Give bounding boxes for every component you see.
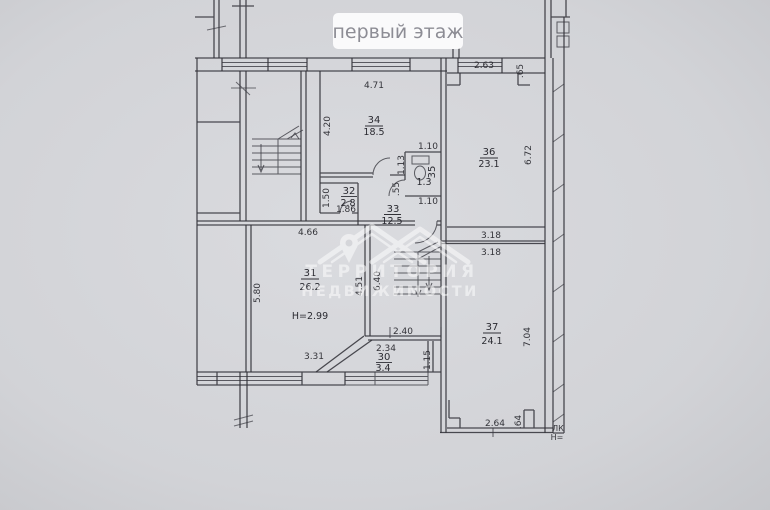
dim-bottom-notch: .64	[514, 415, 524, 430]
watermark-line1: ТЕРРИТОРИЯ	[305, 262, 478, 282]
dim-wc-top: 1.10	[418, 142, 438, 152]
room-37-area: 24.1	[481, 336, 502, 347]
dim-room30-width: 2.34	[376, 344, 396, 354]
room-34-number: 34	[368, 115, 381, 126]
room-37-number: 37	[486, 322, 499, 333]
dim-corridor-upper: 3.18	[481, 231, 501, 241]
dim-corridor-lower: 3.18	[481, 248, 501, 258]
room-31-ceiling-height: Н=2.99	[292, 311, 328, 322]
dim-room31-bottom: 3.31	[304, 352, 324, 362]
dim-room30-top: 2.40	[393, 327, 413, 337]
room-35-number: 35	[427, 166, 438, 179]
watermark-line2: НЕДВИЖИМОСТИ	[301, 284, 478, 300]
dim-wc-left-lower: .55	[392, 182, 402, 196]
floor-badge-label: первый этаж	[332, 21, 463, 43]
floor-badge: первый этаж	[332, 13, 463, 49]
room-36-number: 36	[483, 147, 496, 158]
room-36-area: 23.1	[478, 159, 499, 170]
dim-room32-depth: 1.50	[322, 188, 332, 208]
room-34-area: 18.5	[363, 127, 384, 138]
dim-wc-bottom: 1.10	[418, 197, 438, 207]
dim-room34-width: 4.71	[364, 81, 384, 91]
dim-room36-width: 2.63	[474, 61, 494, 71]
dim-room36-depth: 6.72	[524, 145, 534, 165]
dim-room34-depth: 4.20	[323, 116, 333, 136]
scanned-floorplan-page: 34 18.5 36 23.1 32 2.8 33 12.5 31 26.2 Н…	[0, 0, 770, 510]
dim-room37-depth: 7.04	[523, 327, 533, 347]
room-32-number: 32	[343, 186, 356, 197]
dim-room36-notch: .65	[516, 64, 526, 78]
room-33-number: 33	[387, 204, 400, 215]
floorplan-drawing: 34 18.5 36 23.1 32 2.8 33 12.5 31 26.2 Н…	[0, 0, 770, 510]
dim-room31-width: 4.66	[298, 228, 318, 238]
room-30-area: 3.4	[375, 363, 390, 374]
room-33-area: 12.5	[381, 216, 402, 227]
dim-room32-width: 1.86	[336, 205, 356, 215]
stairwell-height-label: Н=	[551, 433, 564, 442]
dim-room30-depth: 1.15	[423, 350, 433, 370]
dim-wc-left: 1.13	[397, 155, 407, 175]
dim-bottom-width: 2.64	[485, 419, 505, 429]
dim-room31-depth: 5.80	[253, 283, 263, 303]
stairwell-label: ЛК	[552, 424, 564, 433]
